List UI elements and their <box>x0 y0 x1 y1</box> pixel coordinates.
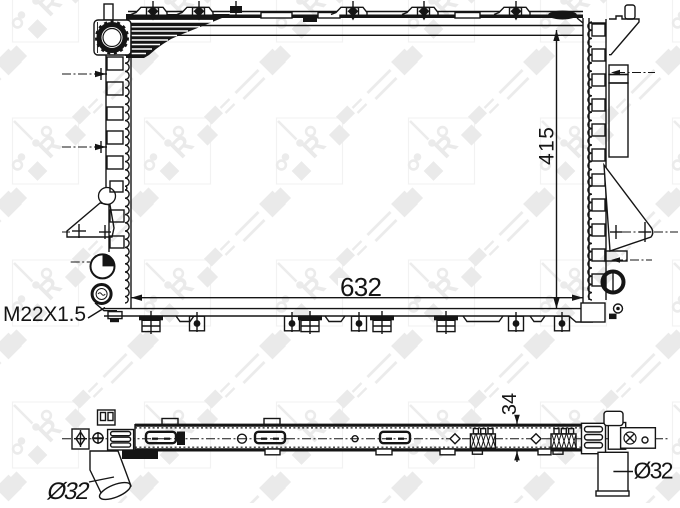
svg-text:415: 415 <box>536 127 559 165</box>
svg-text:632: 632 <box>340 272 382 302</box>
svg-text:Ø32: Ø32 <box>634 458 674 484</box>
svg-text:Ø32: Ø32 <box>45 478 93 503</box>
svg-text:M22X1.5: M22X1.5 <box>3 303 86 326</box>
svg-text:34: 34 <box>499 393 521 415</box>
